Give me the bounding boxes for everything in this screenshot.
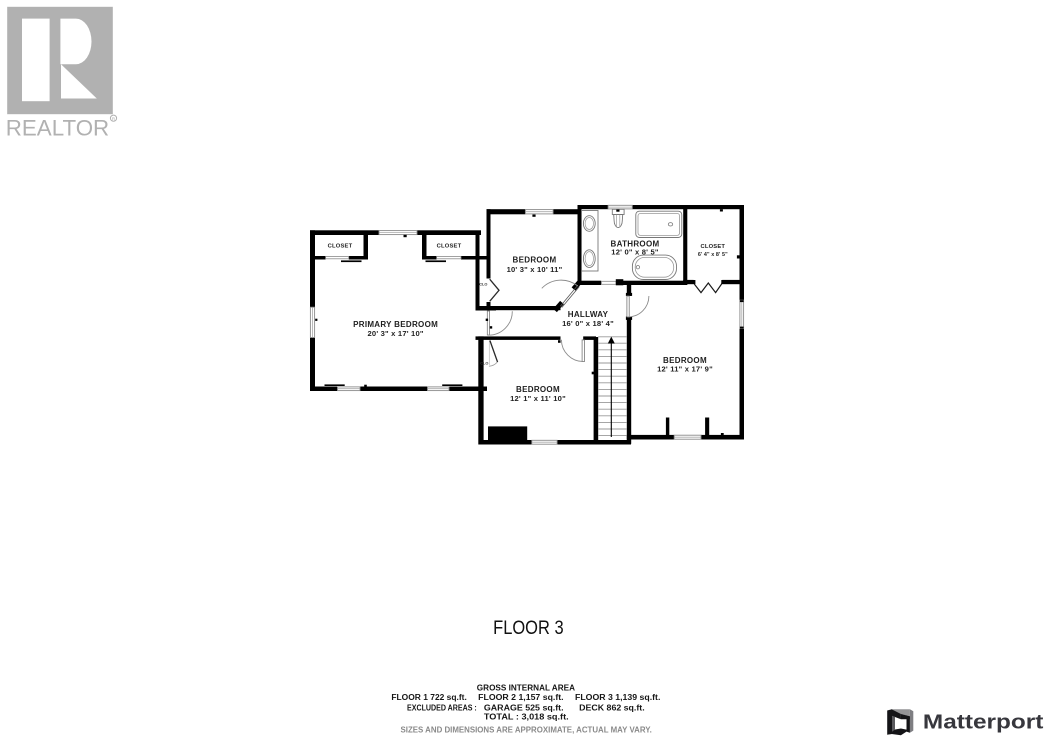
svg-text:12' 1" x 11' 10": 12' 1" x 11' 10" [510, 394, 566, 403]
svg-text:PRIMARY BEDROOM: PRIMARY BEDROOM [353, 320, 438, 329]
svg-text:12' 0" x 8' 5": 12' 0" x 8' 5" [611, 247, 659, 256]
svg-text:6' 4" x 8' 5": 6' 4" x 8' 5" [698, 252, 728, 258]
svg-text:20' 3" x 17' 10": 20' 3" x 17' 10" [367, 329, 423, 338]
svg-text:TOTAL : 3,018 sq.ft.: TOTAL : 3,018 sq.ft. [484, 712, 569, 721]
svg-text:Matterport: Matterport [923, 712, 1044, 734]
svg-text:FLOOR 2 1,157 sq.ft.: FLOOR 2 1,157 sq.ft. [478, 693, 563, 702]
svg-text:CLOSET: CLOSET [328, 243, 353, 249]
svg-text:SIZES AND DIMENSIONS ARE APPRO: SIZES AND DIMENSIONS ARE APPROXIMATE, AC… [401, 725, 652, 734]
svg-text:CLOSET: CLOSET [700, 244, 725, 250]
svg-text:CLOSET: CLOSET [437, 243, 462, 249]
svg-text:12' 11" x 17' 9": 12' 11" x 17' 9" [657, 365, 713, 374]
svg-text:REALTOR: REALTOR [6, 115, 109, 140]
svg-text:HALLWAY: HALLWAY [568, 310, 609, 319]
svg-text:EXCLUDED AREAS :: EXCLUDED AREAS : [407, 703, 477, 712]
svg-text:BEDROOM: BEDROOM [516, 385, 560, 394]
svg-text:10' 3" x 10' 11": 10' 3" x 10' 11" [507, 265, 563, 274]
svg-text:FLOOR 1 722 sq.ft.: FLOOR 1 722 sq.ft. [391, 693, 466, 702]
svg-text:16' 0" x 18' 4": 16' 0" x 18' 4" [562, 319, 614, 328]
svg-text:FLOOR 3: FLOOR 3 [493, 617, 564, 639]
svg-text:GROSS INTERNAL AREA: GROSS INTERNAL AREA [477, 682, 575, 692]
svg-text:DECK 862 sq.ft.: DECK 862 sq.ft. [579, 703, 645, 712]
svg-text:GARAGE 525 sq.ft.: GARAGE 525 sq.ft. [484, 703, 564, 712]
svg-text:R: R [112, 116, 116, 122]
svg-text:BEDROOM: BEDROOM [513, 256, 557, 265]
svg-text:FLOOR 3 1,139 sq.ft.: FLOOR 3 1,139 sq.ft. [575, 693, 660, 702]
svg-text:CLO: CLO [479, 282, 487, 287]
svg-text:CLO: CLO [480, 360, 488, 365]
